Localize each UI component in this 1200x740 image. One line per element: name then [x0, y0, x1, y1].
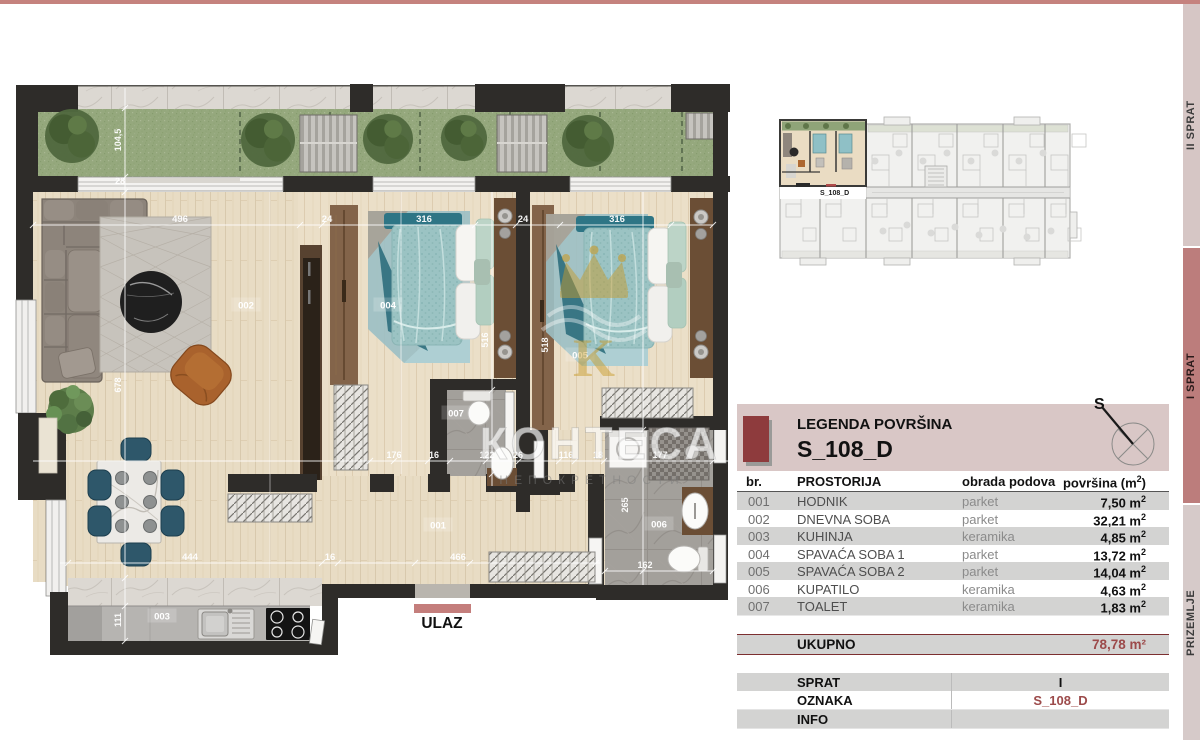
svg-text:006: 006	[651, 520, 667, 531]
svg-text:111: 111	[113, 613, 123, 627]
svg-text:496: 496	[172, 214, 188, 225]
svg-text:004: 004	[380, 301, 397, 312]
svg-text:001: 001	[430, 521, 447, 532]
svg-text:003: 003	[154, 612, 170, 623]
svg-text:НЕПОКРЕТНОСТИ: НЕПОКРЕТНОСТИ	[499, 473, 684, 487]
svg-text:16: 16	[429, 450, 439, 460]
svg-text:466: 466	[450, 552, 466, 563]
svg-text:518: 518	[540, 337, 550, 352]
svg-text:24: 24	[518, 214, 529, 225]
svg-text:162: 162	[637, 560, 652, 570]
svg-text:КОНТЕСА: КОНТЕСА	[480, 418, 721, 469]
svg-text:002: 002	[238, 301, 254, 312]
svg-text:444: 444	[182, 552, 199, 563]
svg-text:176: 176	[386, 450, 401, 460]
svg-text:S: S	[1094, 396, 1105, 413]
svg-text:16: 16	[325, 552, 336, 563]
svg-text:316: 316	[416, 214, 432, 225]
svg-text:678: 678	[113, 377, 123, 392]
svg-text:516: 516	[480, 332, 490, 347]
svg-text:S_108_D: S_108_D	[820, 190, 849, 197]
svg-text:K: K	[573, 328, 615, 388]
svg-text:104,5: 104,5	[113, 129, 123, 152]
svg-text:316: 316	[609, 214, 625, 225]
svg-text:ULAZ: ULAZ	[421, 615, 463, 632]
svg-text:28: 28	[115, 176, 125, 186]
svg-text:24: 24	[322, 214, 333, 225]
svg-text:007: 007	[448, 409, 464, 420]
svg-text:265: 265	[620, 497, 630, 512]
